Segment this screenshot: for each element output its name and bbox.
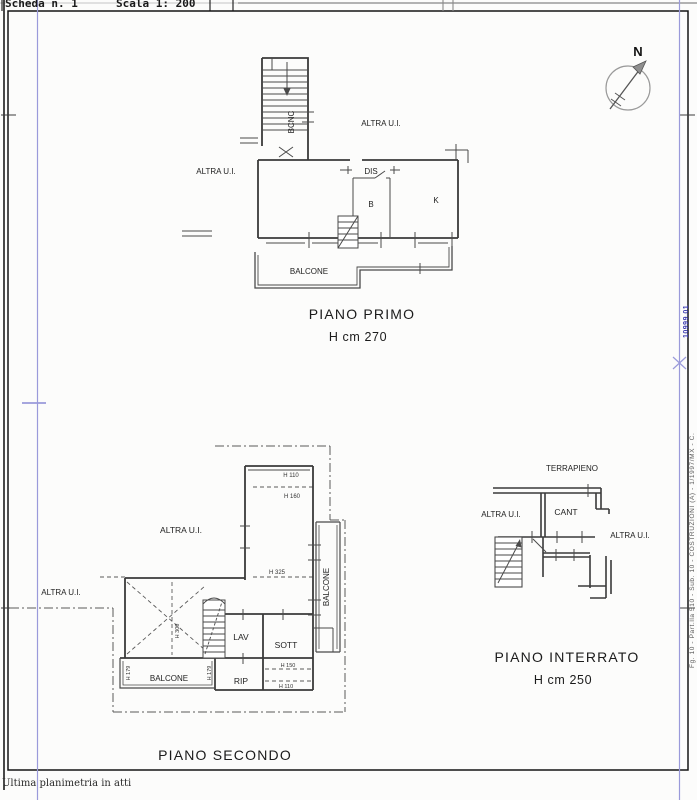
height-label-h300: H 300 (175, 624, 181, 639)
height-label-h160: H 160 (284, 494, 301, 500)
room-label-balcone-bottom: BALCONE (150, 674, 188, 683)
label-terrapieno: TERRAPIENO (546, 464, 598, 473)
room-label-lav: LAV (233, 632, 249, 642)
room-label-altra-left: ALTRA U.I. (196, 167, 235, 176)
room-label-rip: RIP (234, 676, 249, 686)
piano-interrato-plan: TERRAPIENO ALTRA U.I. CANT ALTRA U.I. PI… (481, 464, 649, 687)
room-label-b: B (368, 200, 373, 209)
room-label-altra-int-left: ALTRA U.I. (481, 510, 520, 519)
margin-annotation: Fg. 10 - Part.lla 510 - Sub. 10 - COSTRU… (689, 433, 696, 668)
room-label-balcone: BALCONE (290, 267, 328, 276)
room-label-sott: SOTT (275, 640, 298, 650)
room-label-altra-center: ALTRA U.I. (160, 525, 202, 535)
footer-note: Ultima planimetria in atti (2, 778, 131, 789)
height-label-h325: H 325 (269, 570, 286, 576)
piano-primo-inner-stair (338, 216, 358, 248)
room-label-cant: CANT (554, 507, 577, 517)
height-label-h110-top: H 110 (283, 473, 299, 479)
piano-secondo-balconies (120, 522, 340, 688)
room-label-dis: DIS (364, 167, 377, 176)
piano-primo-title: PIANO PRIMO (309, 306, 416, 322)
room-label-altra-top: ALTRA U.I. (361, 119, 400, 128)
margin-stamp: 10999.01 (683, 305, 690, 338)
piano-primo-plan: BCNC ALTRA U.I. ALTRA U.I. DIS B K BALCO… (182, 58, 468, 344)
piano-primo-walls (258, 58, 458, 238)
height-label-h110-low: H 110 (279, 684, 293, 690)
room-label-bcnc: BCNC (287, 110, 296, 133)
room-label-altra-left2: ALTRA U.I. (41, 588, 80, 597)
north-label: N (633, 44, 642, 59)
scala-label: Scala 1: 200 (116, 0, 195, 10)
piano-primo-stair (262, 58, 308, 130)
registration-ticks (1, 115, 695, 608)
planimetria-sheet: N BCNC ALTRA U.I (0, 0, 697, 800)
piano-secondo-plan: H 110 H 160 H 325 H 300 H 179 H 179 H 15… (10, 446, 345, 763)
floorplan-drawing: N BCNC ALTRA U.I (0, 0, 697, 800)
room-label-k: K (433, 196, 439, 205)
north-arrow (606, 61, 650, 110)
piano-interrato-stair (495, 537, 522, 587)
compass-circle (606, 66, 650, 110)
piano-secondo-details (240, 470, 321, 664)
piano-primo-details (182, 112, 468, 248)
piano-primo-balcony (255, 246, 452, 288)
piano-interrato-title: PIANO INTERRATO (494, 649, 639, 665)
piano-secondo-title: PIANO SECONDO (158, 747, 292, 763)
height-label-h179-right: H 179 (207, 666, 213, 681)
piano-interrato-height: H cm 250 (534, 673, 592, 687)
north-arrowhead (633, 61, 646, 74)
height-label-h179-left: H 179 (126, 666, 132, 681)
room-label-balcone-right: BALCONE (322, 568, 331, 606)
piano-secondo-stair (203, 598, 225, 658)
sheet-edges (0, 0, 697, 790)
height-label-h150: H 150 (281, 663, 296, 669)
piano-secondo-roofline (10, 446, 345, 712)
room-label-altra-int-right: ALTRA U.I. (610, 531, 649, 540)
piano-primo-height: H cm 270 (329, 330, 387, 344)
scheda-label: Scheda n. 1 (5, 0, 78, 10)
